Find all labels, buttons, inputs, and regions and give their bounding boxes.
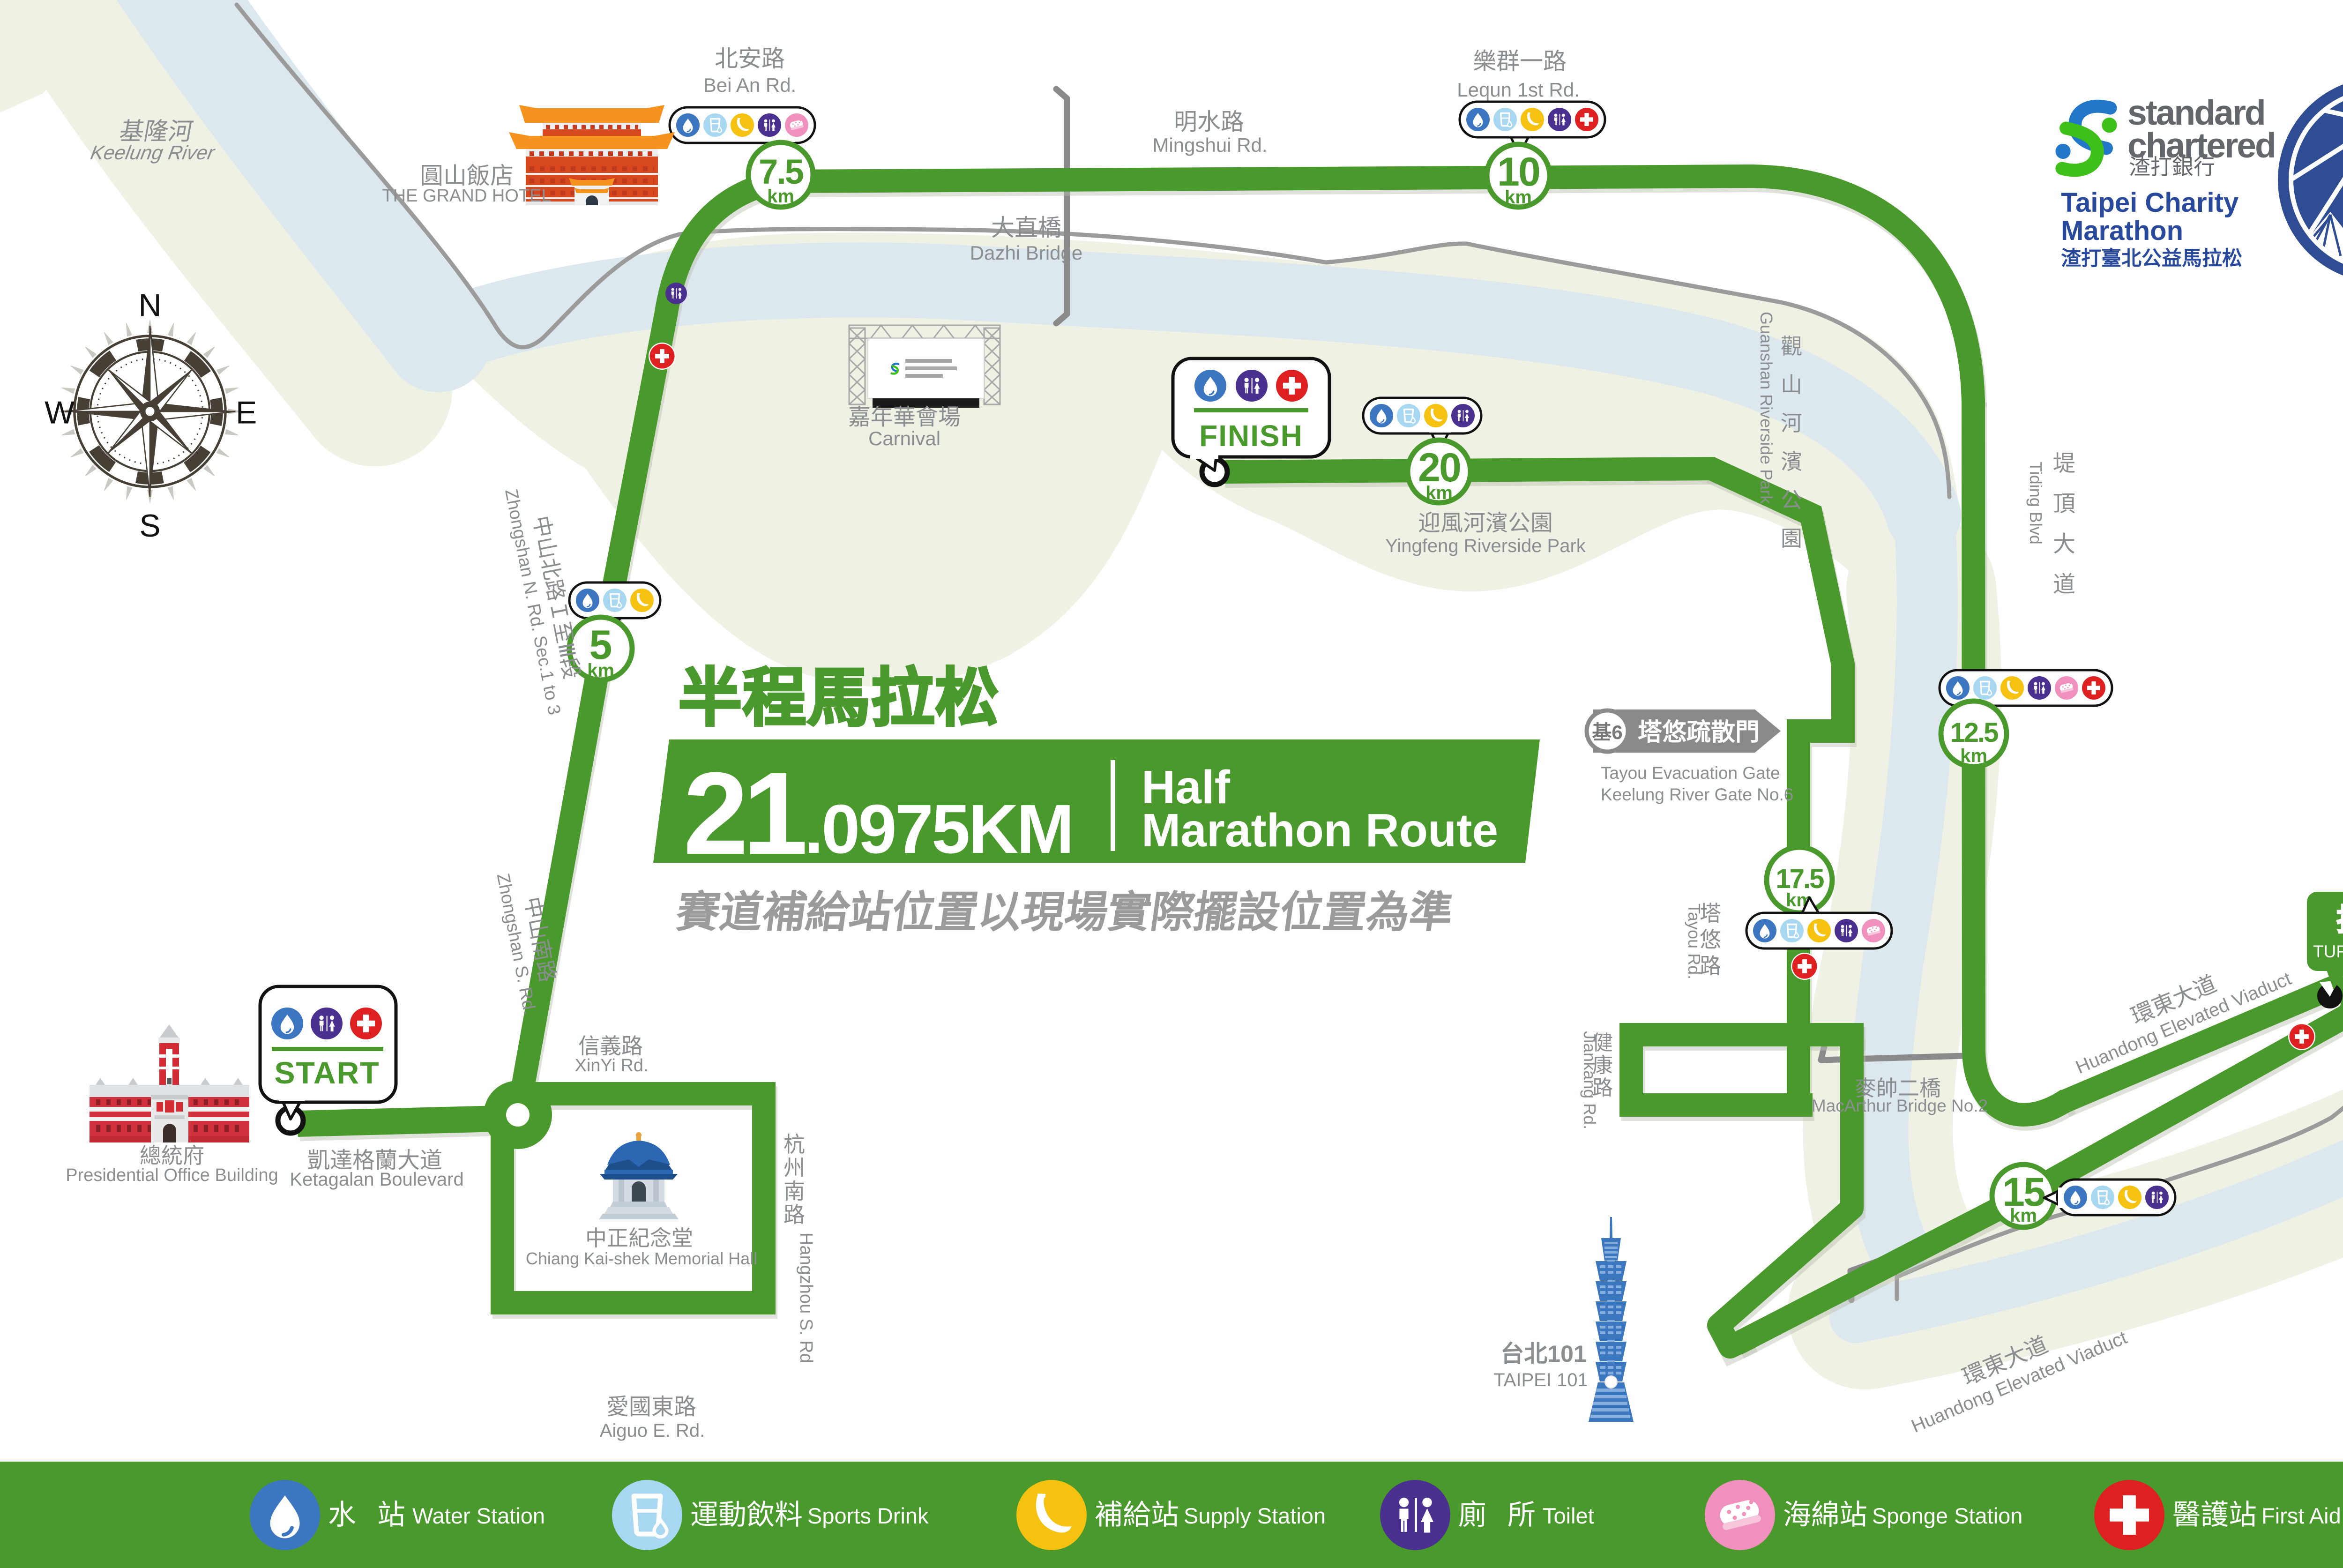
svg-text:大: 大 xyxy=(2053,532,2075,557)
svg-text:明水路: 明水路 xyxy=(1174,109,1244,135)
svg-text:基隆河: 基隆河 xyxy=(117,118,195,145)
svg-text:Keelung River Gate No.6: Keelung River Gate No.6 xyxy=(1601,785,1793,804)
svg-text:Water Station: Water Station xyxy=(412,1503,545,1528)
svg-text:Presidential Office Building: Presidential Office Building xyxy=(66,1165,278,1185)
svg-text:站: 站 xyxy=(377,1499,405,1531)
svg-text:折返點: 折返點 xyxy=(2336,903,2343,937)
svg-text:信義路: 信義路 xyxy=(578,1034,643,1058)
svg-text:醫護站: 醫護站 xyxy=(2172,1499,2257,1531)
svg-text:Ketagalan Boulevard: Ketagalan Boulevard xyxy=(290,1169,463,1190)
svg-text:Taipei Charity: Taipei Charity xyxy=(2061,187,2239,218)
svg-text:道: 道 xyxy=(2053,572,2075,597)
svg-text:km: km xyxy=(587,660,614,681)
svg-text:半程馬拉松: 半程馬拉松 xyxy=(679,663,1000,733)
svg-text:總統府: 總統府 xyxy=(140,1143,204,1168)
svg-text:km: km xyxy=(2010,1205,2037,1226)
svg-text:Bei An Rd.: Bei An Rd. xyxy=(703,74,796,96)
svg-text:N: N xyxy=(139,288,162,323)
svg-text:Tayou Evacuation Gate: Tayou Evacuation Gate xyxy=(1601,763,1780,783)
svg-text:km: km xyxy=(1960,746,1987,766)
svg-text:補給站: 補給站 xyxy=(1095,1499,1179,1531)
svg-text:廁: 廁 xyxy=(1458,1499,1486,1531)
svg-text:頂: 頂 xyxy=(2053,492,2075,516)
svg-text:E: E xyxy=(236,395,257,430)
svg-text:21: 21 xyxy=(683,748,805,879)
svg-text:渣打銀行: 渣打銀行 xyxy=(2129,155,2215,179)
svg-text:中正紀念堂: 中正紀念堂 xyxy=(585,1226,693,1250)
svg-text:南: 南 xyxy=(783,1179,805,1203)
svg-text:河: 河 xyxy=(1781,411,1802,435)
svg-text:山: 山 xyxy=(1781,373,1802,397)
svg-text:Tayou Rd.: Tayou Rd. xyxy=(1685,903,1704,979)
svg-text:水: 水 xyxy=(328,1499,356,1531)
svg-text:大直橋: 大直橋 xyxy=(991,215,1061,241)
svg-text:圓山飯店: 圓山飯店 xyxy=(420,163,514,189)
svg-text:FINISH: FINISH xyxy=(1199,419,1303,453)
svg-text:Supply Station: Supply Station xyxy=(1184,1503,1326,1528)
svg-text:園: 園 xyxy=(1781,526,1802,551)
svg-text:州: 州 xyxy=(783,1156,805,1180)
svg-text:MacArthur Bridge No.2: MacArthur Bridge No.2 xyxy=(1812,1096,1988,1115)
svg-text:12.5: 12.5 xyxy=(1950,717,1999,748)
svg-text:渣打臺北公益馬拉松: 渣打臺北公益馬拉松 xyxy=(2061,247,2242,270)
svg-text:Sponge Station: Sponge Station xyxy=(1872,1503,2022,1528)
svg-text:賽道補給站位置以現場實際擺設位置為準: 賽道補給站位置以現場實際擺設位置為準 xyxy=(673,888,1456,936)
svg-text:台北101: 台北101 xyxy=(1500,1341,1586,1367)
svg-text:Mingshui Rd.: Mingshui Rd. xyxy=(1152,134,1267,156)
svg-text:THE GRAND HOTEL: THE GRAND HOTEL xyxy=(382,186,551,206)
svg-text:北安路: 北安路 xyxy=(715,45,785,72)
svg-text:Jiankang Rd.: Jiankang Rd. xyxy=(1580,1031,1599,1129)
svg-text:Chiang Kai-shek Memorial Hall: Chiang Kai-shek Memorial Hall xyxy=(526,1249,757,1268)
svg-text:W: W xyxy=(45,395,75,430)
svg-text:Marathon: Marathon xyxy=(2061,216,2183,246)
svg-text:Dazhi Bridge: Dazhi Bridge xyxy=(970,242,1082,264)
svg-text:S: S xyxy=(139,508,160,544)
svg-text:觀: 觀 xyxy=(1781,334,1802,358)
svg-text:Lequn 1st Rd.: Lequn 1st Rd. xyxy=(1457,79,1580,101)
svg-text:Carnival: Carnival xyxy=(868,427,940,449)
svg-text:濱: 濱 xyxy=(1781,449,1802,474)
svg-text:所: 所 xyxy=(1507,1499,1536,1531)
svg-text:Hangzhou S. Rd: Hangzhou S. Rd xyxy=(796,1232,816,1363)
svg-text:愛國東路: 愛國東路 xyxy=(606,1395,696,1419)
svg-text:Aiguo E. Rd.: Aiguo E. Rd. xyxy=(600,1420,705,1441)
svg-text:Sports Drink: Sports Drink xyxy=(807,1503,929,1528)
svg-text:Tiding Blvd: Tiding Blvd xyxy=(2026,462,2045,545)
svg-text:Toilet: Toilet xyxy=(1543,1503,1594,1528)
svg-text:Marathon Route: Marathon Route xyxy=(1142,804,1498,857)
svg-text:海綿站: 海綿站 xyxy=(1783,1499,1867,1531)
svg-text:運動飲料: 運動飲料 xyxy=(690,1499,803,1531)
svg-text:km: km xyxy=(1505,187,1532,208)
svg-text:km: km xyxy=(767,186,794,207)
svg-text:.0975KM: .0975KM xyxy=(804,791,1073,868)
svg-text:7.5: 7.5 xyxy=(759,152,804,191)
svg-text:XinYi Rd.: XinYi Rd. xyxy=(575,1056,649,1075)
svg-text:樂群一路: 樂群一路 xyxy=(1473,48,1567,75)
svg-text:Yingfeng Riverside Park: Yingfeng Riverside Park xyxy=(1385,536,1586,556)
svg-text:km: km xyxy=(1425,483,1453,503)
svg-text:嘉年華會場: 嘉年華會場 xyxy=(848,405,961,430)
svg-text:Guanshan Riverside Park: Guanshan Riverside Park xyxy=(1757,312,1776,504)
svg-text:塔悠疏散門: 塔悠疏散門 xyxy=(1638,719,1760,746)
svg-text:First Aid: First Aid xyxy=(2261,1503,2341,1528)
svg-text:杭: 杭 xyxy=(783,1132,805,1157)
svg-text:TURNING POINT: TURNING POINT xyxy=(2313,942,2343,961)
svg-text:Keelung River: Keelung River xyxy=(89,142,217,164)
svg-text:START: START xyxy=(274,1055,380,1090)
svg-text:基6: 基6 xyxy=(1592,721,1622,743)
svg-text:路: 路 xyxy=(783,1202,805,1227)
svg-text:迎風河濱公園: 迎風河濱公園 xyxy=(1418,511,1553,536)
svg-text:TAIPEI 101: TAIPEI 101 xyxy=(1493,1370,1588,1390)
svg-text:堤: 堤 xyxy=(2053,451,2075,476)
svg-text:公: 公 xyxy=(1781,488,1802,512)
